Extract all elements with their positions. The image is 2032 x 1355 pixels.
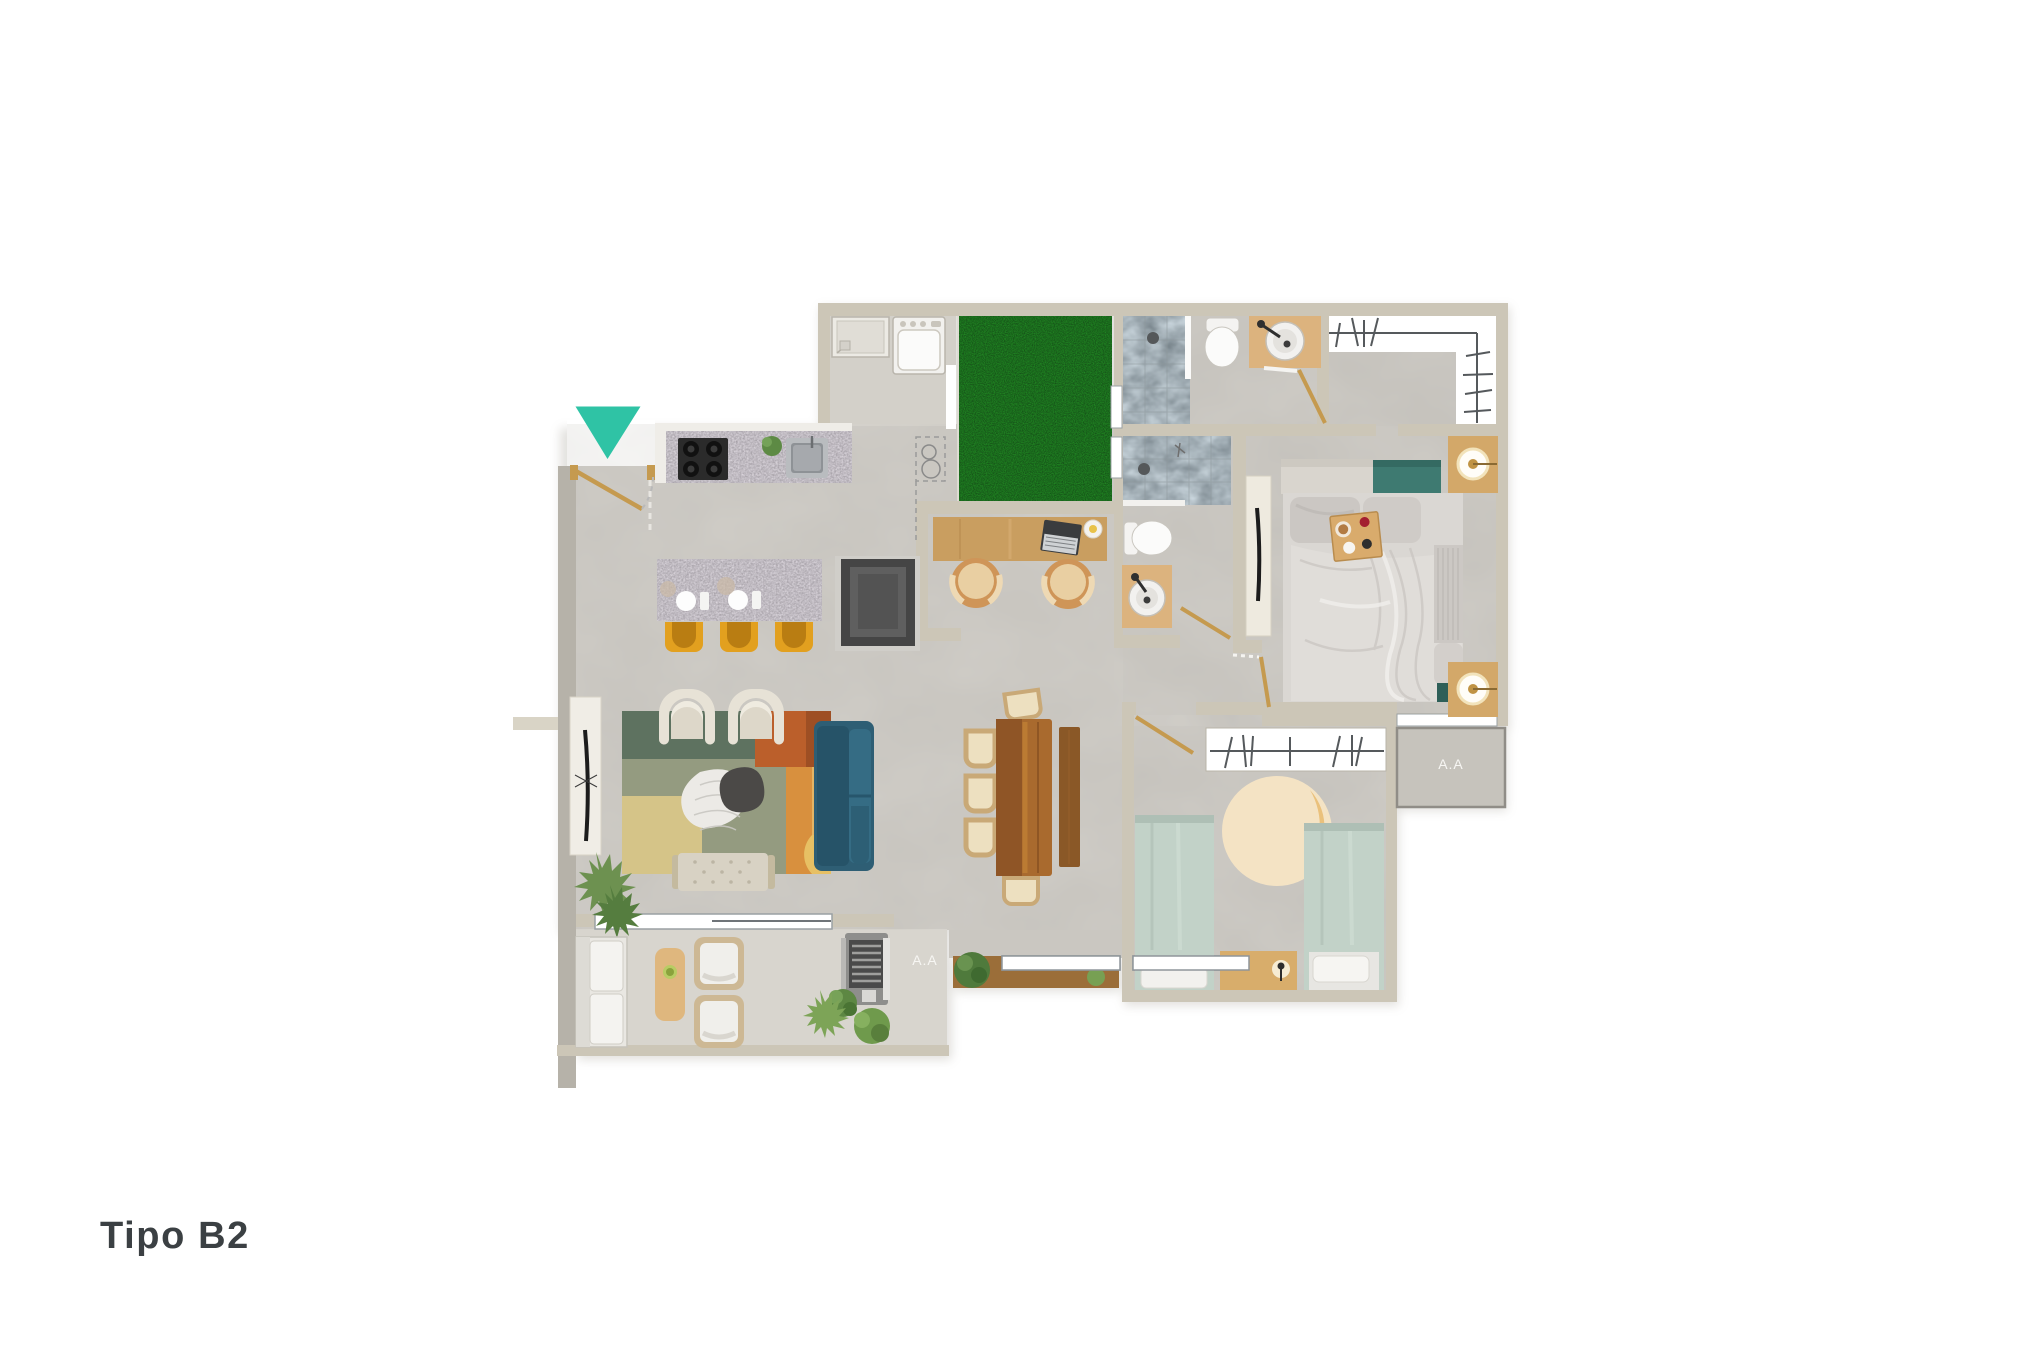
svg-text:A.A: A.A [1438,756,1464,772]
svg-text:A.A: A.A [912,952,938,968]
svg-text:Tipo B2: Tipo B2 [100,1215,250,1257]
